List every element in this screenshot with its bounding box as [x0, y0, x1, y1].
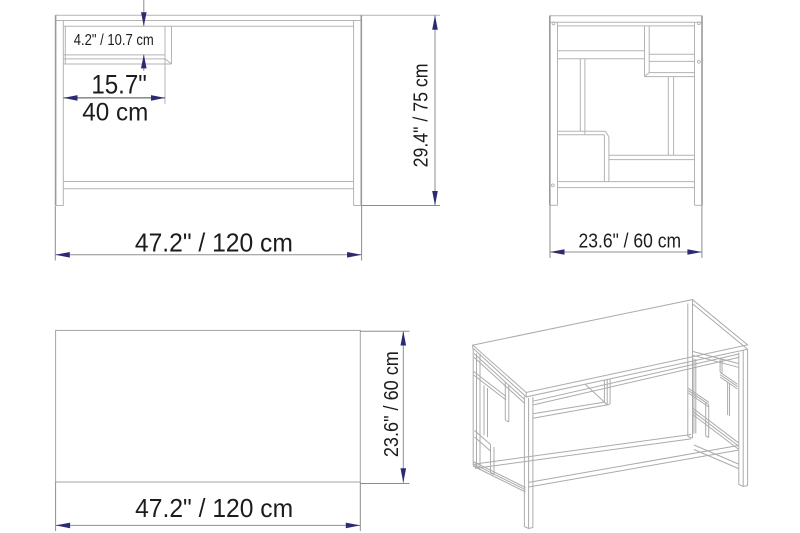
svg-text:15.7": 15.7" [91, 70, 147, 100]
svg-text:47.2" / 120 cm: 47.2" / 120 cm [135, 493, 293, 523]
svg-text:23.6" / 60 cm: 23.6" / 60 cm [381, 351, 403, 457]
svg-text:23.6" / 60 cm: 23.6" / 60 cm [579, 231, 682, 253]
svg-text:29.4" / 75 cm: 29.4" / 75 cm [411, 63, 433, 167]
svg-text:47.2" / 120 cm: 47.2" / 120 cm [135, 228, 293, 258]
svg-text:40 cm: 40 cm [82, 99, 148, 127]
svg-text:4.2" / 10.7 cm: 4.2" / 10.7 cm [74, 32, 154, 49]
